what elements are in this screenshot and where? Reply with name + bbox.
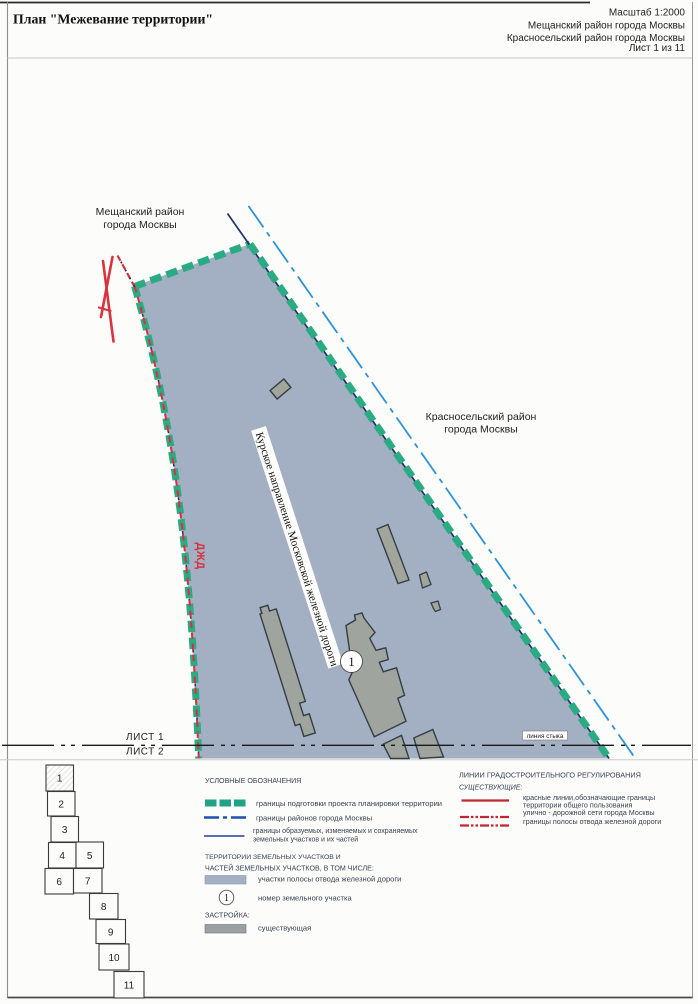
svg-text:Масштаб 1:2000: Масштаб 1:2000 (609, 7, 686, 19)
svg-text:города Москвы: города Москвы (103, 219, 176, 231)
svg-text:ЛИСТ 2: ЛИСТ 2 (126, 747, 164, 758)
svg-text:ЧАСТЕЙ ЗЕМЕЛЬНЫХ УЧАСТКОВ, В Т: ЧАСТЕЙ ЗЕМЕЛЬНЫХ УЧАСТКОВ, В ТОМ ЧИСЛЕ: (205, 864, 374, 873)
svg-text:6: 6 (56, 877, 62, 888)
svg-text:земельных участков и их частей: земельных участков и их частей (253, 836, 358, 844)
svg-text:существующая: существующая (258, 924, 311, 933)
svg-text:Лист 1 из 11: Лист 1 из 11 (629, 43, 686, 54)
svg-text:границы районов города Москвы: границы районов города Москвы (256, 814, 372, 823)
svg-text:11: 11 (124, 981, 135, 992)
svg-text:улично - дорожной сети города: улично - дорожной сети города Москвы (523, 808, 655, 817)
svg-text:границы подготовки проекта пла: границы подготовки проекта планировки те… (256, 799, 442, 808)
svg-text:2: 2 (58, 800, 64, 811)
svg-text:ЛИНИИ ГРАДОСТРОИТЕЛЬНОГО РЕГУЛ: ЛИНИИ ГРАДОСТРОИТЕЛЬНОГО РЕГУЛИРОВАНИЯ (459, 771, 641, 780)
svg-text:ЛИСТ 1: ЛИСТ 1 (126, 732, 164, 743)
svg-text:границы полосы отвода железной: границы полосы отвода железной дороги (523, 817, 661, 826)
svg-text:План "Межевание территории": План "Межевание территории" (13, 12, 213, 27)
svg-text:УСЛОВНЫЕ ОБОЗНАЧЕНИЯ: УСЛОВНЫЕ ОБОЗНАЧЕНИЯ (205, 777, 301, 785)
svg-text:1: 1 (224, 893, 229, 904)
svg-text:1: 1 (348, 655, 354, 669)
svg-text:5: 5 (87, 851, 93, 862)
svg-text:ЗАСТРОЙКА:: ЗАСТРОЙКА: (205, 911, 250, 920)
svg-text:1: 1 (57, 774, 63, 785)
svg-text:ТЕРРИТОРИИ ЗЕМЕЛЬНЫХ УЧАСТКОВ: ТЕРРИТОРИИ ЗЕМЕЛЬНЫХ УЧАСТКОВ И (205, 854, 341, 861)
svg-text:номер земельного участка: номер земельного участка (258, 894, 352, 903)
svg-text:города Москвы: города Москвы (444, 424, 517, 436)
svg-text:10: 10 (108, 953, 120, 964)
svg-text:линия стыка: линия стыка (527, 733, 564, 740)
svg-text:ДЖД: ДЖД (194, 543, 206, 570)
svg-text:Мещанский район города Москвы: Мещанский район города Москвы (528, 21, 685, 32)
svg-text:3: 3 (62, 825, 68, 836)
svg-text:СУЩЕСТВУЮЩИЕ:: СУЩЕСТВУЮЩИЕ: (459, 785, 522, 792)
svg-text:4: 4 (59, 851, 65, 862)
svg-text:9: 9 (108, 928, 114, 939)
svg-text:7: 7 (85, 877, 91, 888)
svg-text:участки полосы отвода железной: участки полосы отвода железной дороги (258, 875, 401, 884)
svg-text:границы образуемых, изменяемых: границы образуемых, изменяемых и сохраня… (253, 827, 418, 835)
svg-text:8: 8 (101, 902, 107, 913)
svg-text:Мещанский район: Мещанский район (96, 206, 185, 218)
svg-text:Красносельский район: Красносельский район (426, 411, 537, 423)
